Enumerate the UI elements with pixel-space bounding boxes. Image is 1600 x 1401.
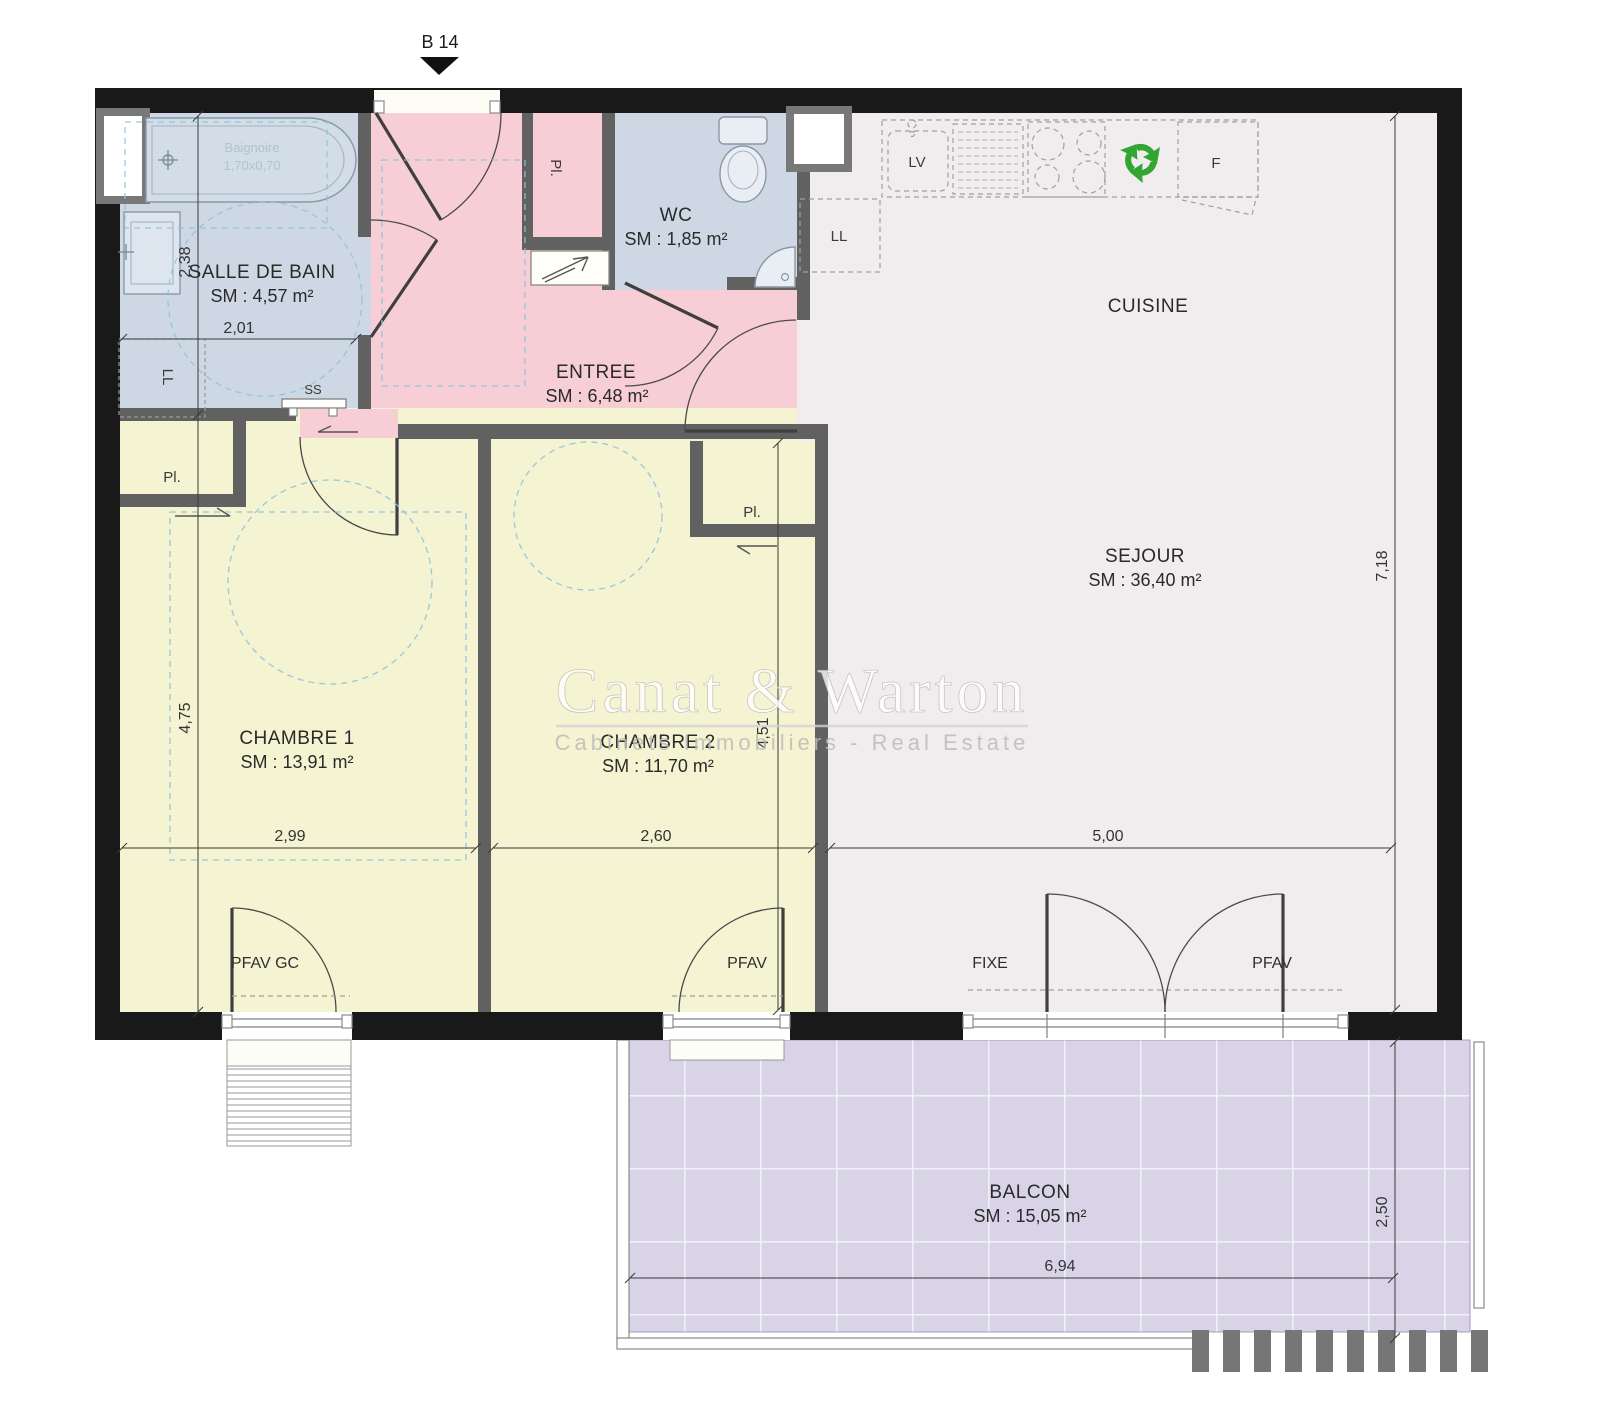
- washbasin: [124, 212, 180, 294]
- balcon-name: BALCON: [989, 1182, 1070, 1203]
- balcony-railing-right: [1474, 1042, 1484, 1308]
- wc-name: WC: [660, 205, 693, 226]
- sejour-area: SM : 36,40 m²: [1088, 570, 1201, 590]
- chambre1-doorway-floor: [300, 409, 398, 438]
- shaft-inner: [794, 114, 844, 164]
- washing-machine-label: LL: [159, 369, 176, 386]
- washer-kitchen-label: LL: [831, 228, 848, 245]
- pfav-sejour-label: PFAV: [1252, 955, 1292, 972]
- wc-area: SM : 1,85 m²: [624, 229, 727, 249]
- sejour-window: [963, 1012, 1348, 1040]
- closet-chambre2-label: Pl.: [743, 504, 761, 521]
- towel-dryer: [282, 399, 346, 408]
- watermark: Canat & Warton Cabinets Immobiliers - Re…: [555, 655, 1030, 755]
- pfav-gc-label: PFAV GC: [231, 955, 299, 972]
- balcony-railing-bottom: [617, 1338, 1202, 1349]
- unit-marker-label: B 14: [421, 32, 458, 52]
- closet-entree-label: Pl.: [547, 159, 564, 177]
- fridge-label: F: [1211, 155, 1220, 172]
- entree-area: SM : 6,48 m²: [545, 386, 648, 406]
- cuisine-floor: [797, 113, 1437, 441]
- dim-chambre1-width: 2,99: [274, 828, 305, 845]
- bath-dims-label: 1,70x0,70: [223, 158, 280, 173]
- dishwasher-label: LV: [908, 154, 925, 171]
- balcony-posts: [1192, 1330, 1488, 1372]
- fixe-label: FIXE: [972, 955, 1008, 972]
- toilet-tank: [719, 117, 767, 144]
- dim-sdb-width: 2,01: [223, 320, 254, 337]
- dim-sejour-width: 5,00: [1092, 828, 1123, 845]
- entry-jamb-left: [374, 101, 384, 113]
- chambre1-area: SM : 13,91 m²: [240, 752, 353, 772]
- dim-chambre2-width: 2,60: [640, 828, 671, 845]
- watermark-tagline: Cabinets Immobiliers - Real Estate: [555, 730, 1030, 755]
- entree-details: [531, 251, 609, 285]
- closet-chambre1-label: Pl.: [163, 469, 181, 486]
- chambre1-name: CHAMBRE 1: [239, 728, 354, 749]
- chambre2-window: [663, 1012, 790, 1040]
- unit-marker: B 14: [420, 32, 459, 75]
- entry-jamb-right: [490, 101, 500, 113]
- dim-balcon-depth: 2,50: [1374, 1196, 1391, 1227]
- unit-marker-triangle: [420, 57, 459, 75]
- bath-label: Baignoire: [225, 140, 280, 155]
- sdb-window-glass: [104, 116, 142, 196]
- salle-de-bain-name: SALLE DE BAIN: [189, 262, 336, 283]
- chambre2-sill: [670, 1040, 784, 1060]
- floor-plan: 2,38 2,01 4,75 2,99 2,60 5,00 4,51 7,18 …: [0, 0, 1600, 1401]
- chambre1-shutter: [227, 1066, 351, 1146]
- sejour-name: SEJOUR: [1105, 546, 1185, 567]
- pfav-ch2-label: PFAV: [727, 955, 767, 972]
- chambre1-window: [222, 1012, 352, 1040]
- balcony-railing-left: [617, 1040, 629, 1340]
- chambre2-area: SM : 11,70 m²: [602, 756, 714, 776]
- towel-dryer-label: SS: [304, 382, 322, 397]
- chambre1-sill: [227, 1040, 351, 1066]
- cuisine-name: CUISINE: [1108, 296, 1189, 317]
- salle-de-bain-area: SM : 4,57 m²: [210, 286, 313, 306]
- dim-sejour-height: 7,18: [1374, 550, 1391, 581]
- watermark-brand: Canat & Warton: [556, 655, 1029, 726]
- dim-balcon-width: 6,94: [1044, 1258, 1075, 1275]
- balcon-area: SM : 15,05 m²: [973, 1206, 1086, 1226]
- dim-chambre1-height: 4,75: [177, 702, 194, 733]
- toilet-bowl: [720, 146, 766, 202]
- entry-door-gap: [374, 90, 500, 113]
- entree-name: ENTREE: [556, 362, 636, 383]
- electrical-box: [531, 251, 609, 285]
